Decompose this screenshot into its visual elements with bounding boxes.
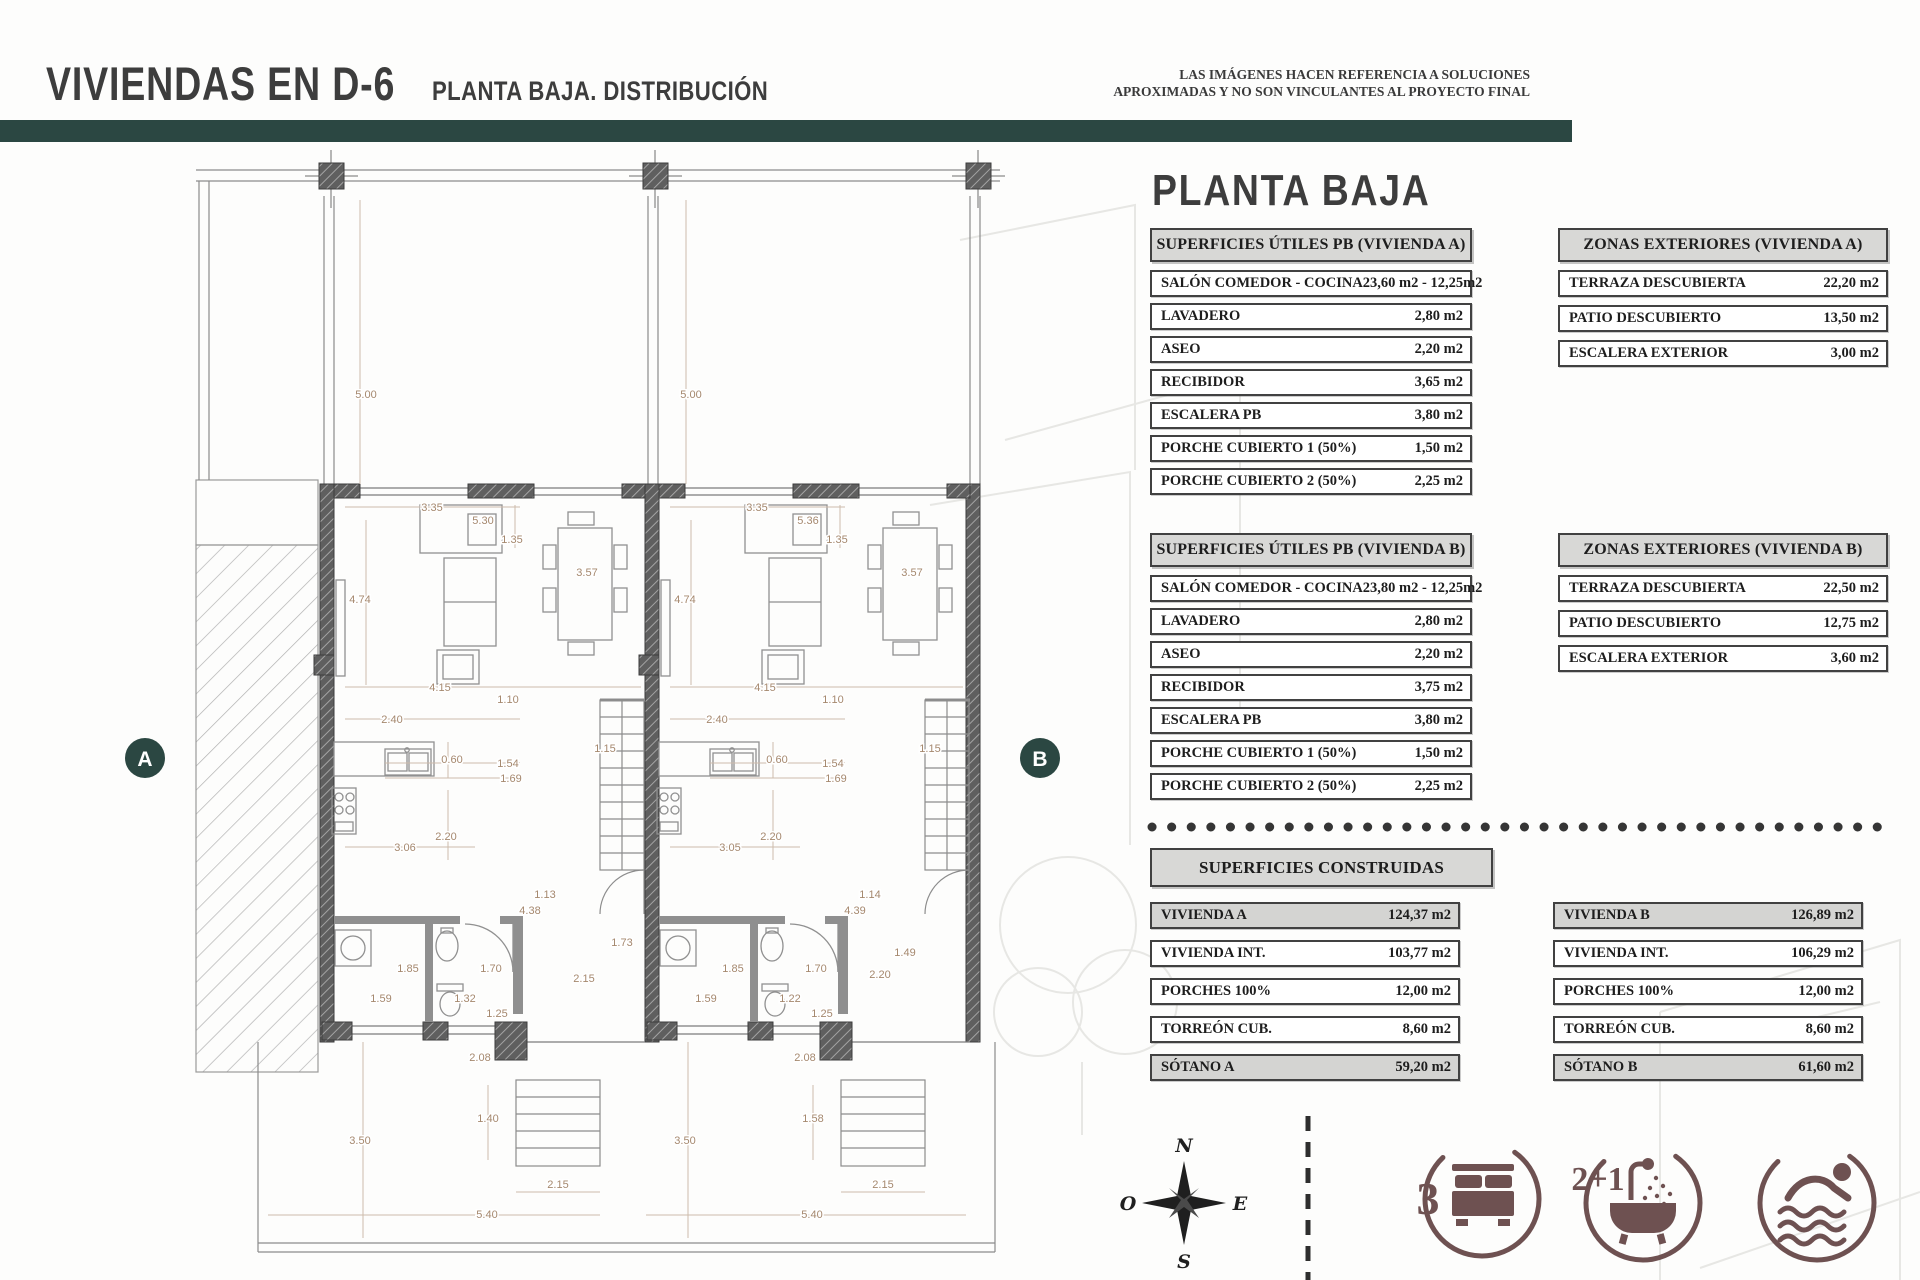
bed-icon: [1452, 1164, 1514, 1226]
row-label: TORREÓN CUB.: [1564, 1021, 1675, 1038]
table-row: PORCHE CUBIERTO 1 (50%) 1,50 m2: [1150, 435, 1472, 462]
table-row: VIVIENDA INT. 106,29 m2: [1553, 940, 1863, 967]
dimension-label: 2.15: [573, 973, 594, 985]
dimension-label: 4.74: [349, 594, 370, 606]
table-row: PORCHE CUBIERTO 2 (50%) 2,25 m2: [1150, 773, 1472, 800]
row-label: VIVIENDA B: [1564, 907, 1650, 924]
table-zonas-exteriores-a: ZONAS EXTERIORES (VIVIENDA A) TERRAZA DE…: [1558, 228, 1888, 375]
row-value: 1,50 m2: [1415, 745, 1463, 762]
table-row: ESCALERA EXTERIOR 3,60 m2: [1558, 645, 1888, 672]
table-superficies-utiles-b: SUPERFICIES ÚTILES PB (VIVIENDA B) SALÓN…: [1150, 533, 1472, 806]
unit-badge-b: B: [1020, 738, 1060, 778]
table-row: RECIBIDOR 3,65 m2: [1150, 369, 1472, 396]
dimension-label: 4.74: [674, 594, 695, 606]
row-label: ESCALERA EXTERIOR: [1569, 650, 1728, 667]
dimension-label: 2.15: [547, 1179, 568, 1191]
table-row: PATIO DESCUBIERTO 13,50 m2: [1558, 305, 1888, 332]
page-title: VIVIENDAS EN D-6: [46, 56, 395, 111]
table-row: ESCALERA PB 3,80 m2: [1150, 402, 1472, 429]
floorplan-drawing: 5.005.003.353.355.305.361.351.353.573.57…: [125, 150, 1060, 1252]
dimension-label: 2.20: [435, 831, 456, 843]
dimension-label: 3.50: [674, 1135, 695, 1147]
dimension-label: 2.08: [469, 1052, 490, 1064]
dimension-label: 1.54: [822, 758, 843, 770]
row-value: 23,80 m2 - 12,25m2: [1363, 580, 1483, 597]
dimension-label: 1.14: [859, 889, 880, 901]
dimension-label: 1.15: [594, 743, 615, 755]
dimension-label: 1.59: [370, 993, 391, 1005]
exterior-stairs: [516, 1080, 600, 1166]
dimension-label: 1.69: [500, 773, 521, 785]
dimension-label: 1.22: [779, 993, 800, 1005]
table-header-utiles-b: SUPERFICIES ÚTILES PB (VIVIENDA B): [1150, 533, 1472, 567]
compass-west-label: O: [1120, 1193, 1137, 1215]
header-divider-bar: [0, 120, 1572, 142]
panel-title: PLANTA BAJA: [1152, 166, 1430, 216]
table-construidas-b: VIVIENDA B 126,89 m2 VIVIENDA INT. 106,2…: [1553, 899, 1863, 1092]
table-row: SALÓN COMEDOR - COCINA 23,80 m2 - 12,25m…: [1150, 575, 1472, 602]
row-value: 61,60 m2: [1798, 1059, 1854, 1076]
row-label: PORCHE CUBIERTO 2 (50%): [1161, 473, 1356, 490]
row-label: SALÓN COMEDOR - COCINA: [1161, 275, 1363, 292]
setback-notch: [196, 480, 318, 545]
row-label: ASEO: [1161, 646, 1201, 663]
table-construidas-a: VIVIENDA A 124,37 m2 VIVIENDA INT. 103,7…: [1150, 899, 1460, 1092]
row-label: TERRAZA DESCUBIERTA: [1569, 580, 1746, 597]
table-zonas-exteriores-b: ZONAS EXTERIORES (VIVIENDA B) TERRAZA DE…: [1558, 533, 1888, 680]
row-value: 13,50 m2: [1823, 310, 1879, 327]
dimension-label: 3.35: [746, 502, 767, 514]
unit-a-label: A: [137, 748, 152, 771]
row-label: VIVIENDA INT.: [1564, 945, 1668, 962]
row-label: RECIBIDOR: [1161, 374, 1245, 391]
dimension-label: 5.00: [680, 389, 701, 401]
dimension-label: 1.49: [894, 947, 915, 959]
table-row: TERRAZA DESCUBIERTA 22,20 m2: [1558, 270, 1888, 297]
table-row: TORREÓN CUB. 8,60 m2: [1553, 1016, 1863, 1043]
dimension-label: 1.10: [822, 694, 843, 706]
table-row: LAVADERO 2,80 m2: [1150, 303, 1472, 330]
dimension-label: 4.38: [519, 905, 540, 917]
row-label: PORCHE CUBIERTO 1 (50%): [1161, 745, 1356, 762]
row-label: TORREÓN CUB.: [1161, 1021, 1272, 1038]
compass-south-label: S: [1177, 1251, 1191, 1273]
dimension-label: 2.15: [872, 1179, 893, 1191]
row-value: 8,60 m2: [1806, 1021, 1854, 1038]
structural-columns: [305, 150, 1005, 208]
terrace-boundary: [258, 1042, 995, 1252]
table-row: SÓTANO A 59,20 m2: [1150, 1054, 1460, 1081]
row-label: SÓTANO B: [1564, 1059, 1637, 1076]
table-row: PORCHE CUBIERTO 2 (50%) 2,25 m2: [1150, 468, 1472, 495]
table-row: ASEO 2,20 m2: [1150, 641, 1472, 668]
dining-furniture: [543, 512, 627, 655]
bathrooms-circle: [1564, 1124, 1723, 1280]
dimension-label: 1.73: [611, 937, 632, 949]
dimension-label: 1.54: [497, 758, 518, 770]
row-value: 12,75 m2: [1823, 615, 1879, 632]
row-label: VIVIENDA A: [1161, 907, 1247, 924]
row-value: 3,75 m2: [1415, 679, 1463, 696]
table-row: PORCHES 100% 12,00 m2: [1553, 978, 1863, 1005]
row-label: LAVADERO: [1161, 308, 1240, 325]
dimension-label: 2.40: [381, 714, 402, 726]
row-label: PORCHE CUBIERTO 1 (50%): [1161, 440, 1356, 457]
row-value: 3,80 m2: [1415, 407, 1463, 424]
dimension-label: 1.85: [722, 963, 743, 975]
dimension-label: 5.30: [472, 515, 493, 527]
dimension-label: 1.35: [501, 534, 522, 546]
row-label: PATIO DESCUBIERTO: [1569, 615, 1721, 632]
dimension-label: 5.36: [797, 515, 818, 527]
unit-badge-a: A: [125, 738, 165, 778]
row-value: 126,89 m2: [1791, 907, 1854, 924]
disclaimer-text: LAS IMÁGENES HACEN REFERENCIA A SOLUCION…: [1113, 66, 1530, 100]
table-header-zonas-b: ZONAS EXTERIORES (VIVIENDA B): [1558, 533, 1888, 567]
dimension-label: 2.08: [794, 1052, 815, 1064]
dimension-label: 1.69: [825, 773, 846, 785]
terrace-projection-lines: [196, 170, 1000, 484]
row-value: 2,25 m2: [1415, 473, 1463, 490]
row-value: 106,29 m2: [1791, 945, 1854, 962]
table-row: ESCALERA EXTERIOR 3,00 m2: [1558, 340, 1888, 367]
dimension-label: 4.39: [844, 905, 865, 917]
dimension-label: 1.35: [826, 534, 847, 546]
plan-sheet: 5.005.003.353.355.305.361.351.353.573.57…: [0, 0, 1920, 1280]
dimension-label: 1.25: [486, 1008, 507, 1020]
row-value: 2,80 m2: [1415, 308, 1463, 325]
row-value: 2,20 m2: [1415, 646, 1463, 663]
dimension-label: 1.13: [534, 889, 555, 901]
table-row: TORREÓN CUB. 8,60 m2: [1150, 1016, 1460, 1043]
row-value: 103,77 m2: [1388, 945, 1451, 962]
dimension-label: 5.00: [355, 389, 376, 401]
table-row: RECIBIDOR 3,75 m2: [1150, 674, 1472, 701]
dimension-label: 3.05: [719, 842, 740, 854]
dimension-label: 3.50: [349, 1135, 370, 1147]
disclaimer-line-1: LAS IMÁGENES HACEN REFERENCIA A SOLUCION…: [1113, 66, 1530, 83]
table-row: ESCALERA PB 3,80 m2: [1150, 707, 1472, 734]
table-row: VIVIENDA B 126,89 m2: [1553, 902, 1863, 929]
dimension-label: 1.15: [919, 743, 940, 755]
dimension-label: 4.15: [429, 682, 450, 694]
table-header-zonas-a: ZONAS EXTERIORES (VIVIENDA A): [1558, 228, 1888, 262]
bedrooms-count: 3: [1417, 1173, 1440, 1224]
table-superficies-construidas: SUPERFICIES CONSTRUIDAS: [1150, 848, 1493, 887]
row-label: PORCHE CUBIERTO 2 (50%): [1161, 778, 1356, 795]
dimension-label: 3.57: [576, 567, 597, 579]
dimension-label: 1.10: [497, 694, 518, 706]
dimension-label: 5.40: [801, 1209, 822, 1221]
dimension-label: 2.40: [706, 714, 727, 726]
table-row: TERRAZA DESCUBIERTA 22,50 m2: [1558, 575, 1888, 602]
row-value: 12,00 m2: [1798, 983, 1854, 1000]
table-row: LAVADERO 2,80 m2: [1150, 608, 1472, 635]
compass-north-label: N: [1174, 1135, 1193, 1157]
pool-feature: [1738, 1124, 1897, 1280]
compass-east-label: E: [1232, 1193, 1248, 1215]
dimension-label: 1.25: [811, 1008, 832, 1020]
table-row: VIVIENDA INT. 103,77 m2: [1150, 940, 1460, 967]
row-value: 3,80 m2: [1415, 712, 1463, 729]
page-subtitle: PLANTA BAJA. DISTRIBUCIÓN: [432, 76, 768, 107]
row-label: PORCHES 100%: [1564, 983, 1674, 1000]
dimension-label: 3.06: [394, 842, 415, 854]
dimension-label: 1.59: [695, 993, 716, 1005]
row-label: PATIO DESCUBIERTO: [1569, 310, 1721, 327]
row-value: 2,20 m2: [1415, 341, 1463, 358]
row-value: 22,20 m2: [1823, 275, 1879, 292]
row-label: ESCALERA EXTERIOR: [1569, 345, 1728, 362]
row-value: 23,60 m2 - 12,25m2: [1363, 275, 1483, 292]
row-label: LAVADERO: [1161, 613, 1240, 630]
table-row: PATIO DESCUBIERTO 12,75 m2: [1558, 610, 1888, 637]
table-row: PORCHES 100% 12,00 m2: [1150, 978, 1460, 1005]
row-value: 1,50 m2: [1415, 440, 1463, 457]
bathrooms-feature: 2+1: [1564, 1124, 1723, 1280]
dimension-label: 1.70: [805, 963, 826, 975]
row-value: 2,25 m2: [1415, 778, 1463, 795]
table-row: PORCHE CUBIERTO 1 (50%) 1,50 m2: [1150, 740, 1472, 767]
dimension-label: 4.15: [754, 682, 775, 694]
row-label: PORCHES 100%: [1161, 983, 1271, 1000]
row-label: ASEO: [1161, 341, 1201, 358]
table-row: VIVIENDA A 124,37 m2: [1150, 902, 1460, 929]
row-value: 22,50 m2: [1823, 580, 1879, 597]
compass-rose-icon: N S E O: [1120, 1135, 1248, 1273]
disclaimer-line-2: APROXIMADAS Y NO SON VINCULANTES AL PROY…: [1113, 83, 1530, 100]
dimension-label: 3.57: [901, 567, 922, 579]
table-superficies-utiles-a: SUPERFICIES ÚTILES PB (VIVIENDA A) SALÓN…: [1150, 228, 1472, 501]
row-value: 12,00 m2: [1395, 983, 1451, 1000]
row-label: ESCALERA PB: [1161, 712, 1261, 729]
bedrooms-feature: 3: [1403, 1120, 1562, 1279]
neighbour-hatch-zone: [196, 545, 318, 1072]
table-header-utiles-a: SUPERFICIES ÚTILES PB (VIVIENDA A): [1150, 228, 1472, 262]
row-value: 3,00 m2: [1831, 345, 1879, 362]
row-value: 3,65 m2: [1415, 374, 1463, 391]
dimension-label: 1.58: [802, 1113, 823, 1125]
dimension-label: 1.85: [397, 963, 418, 975]
row-label: ESCALERA PB: [1161, 407, 1261, 424]
row-label: SALÓN COMEDOR - COCINA: [1161, 580, 1363, 597]
dimension-label: 0.60: [766, 754, 787, 766]
row-label: VIVIENDA INT.: [1161, 945, 1265, 962]
dimension-label: 3.35: [421, 502, 442, 514]
row-value: 59,20 m2: [1395, 1059, 1451, 1076]
dimension-label: 1.32: [454, 993, 475, 1005]
row-value: 3,60 m2: [1831, 650, 1879, 667]
dimension-label: 1.40: [477, 1113, 498, 1125]
dimension-label: 2.20: [760, 831, 781, 843]
row-label: SÓTANO A: [1161, 1059, 1234, 1076]
bathrooms-count: 2+1: [1571, 1161, 1624, 1198]
dimension-label: 2.20: [869, 969, 890, 981]
table-header-construidas: SUPERFICIES CONSTRUIDAS: [1150, 848, 1493, 887]
dimension-label: 0.60: [441, 754, 462, 766]
interior-stairs: [600, 700, 644, 914]
kitchen-fixtures: [332, 742, 434, 834]
row-value: 2,80 m2: [1415, 613, 1463, 630]
table-row: SALÓN COMEDOR - COCINA 23,60 m2 - 12,25m…: [1150, 270, 1472, 297]
row-value: 124,37 m2: [1388, 907, 1451, 924]
table-row: SÓTANO B 61,60 m2: [1553, 1054, 1863, 1081]
dimension-label: 5.40: [476, 1209, 497, 1221]
pool-circle: [1738, 1124, 1897, 1280]
row-value: 8,60 m2: [1403, 1021, 1451, 1038]
dimension-lines: [268, 200, 966, 1238]
row-label: TERRAZA DESCUBIERTA: [1569, 275, 1746, 292]
swimmer-icon: [1780, 1163, 1851, 1244]
table-row: ASEO 2,20 m2: [1150, 336, 1472, 363]
unit-b-label: B: [1032, 748, 1047, 771]
dimension-label: 1.70: [480, 963, 501, 975]
row-label: RECIBIDOR: [1161, 679, 1245, 696]
